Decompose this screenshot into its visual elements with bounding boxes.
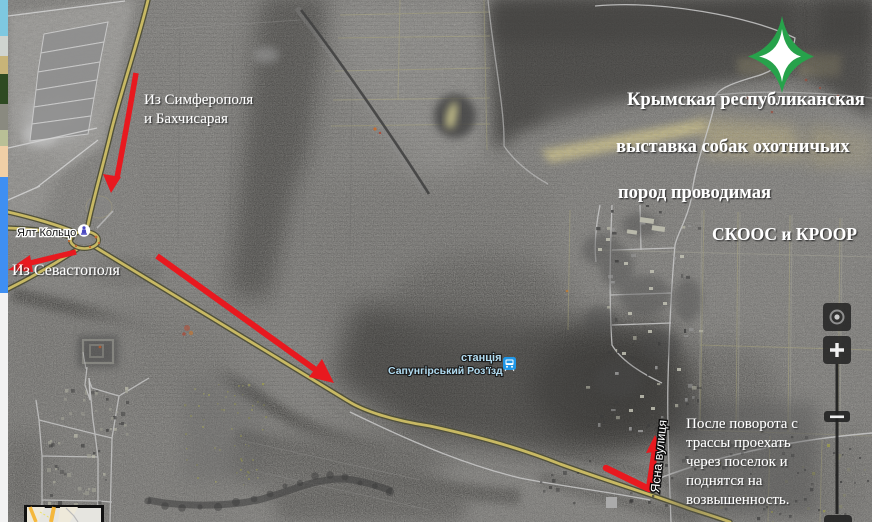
svg-text:поднятся на: поднятся на [686, 473, 763, 489]
svg-text:пород проводимая: пород проводимая [618, 183, 771, 203]
svg-text:и Бахчисарая: и Бахчисарая [144, 111, 228, 127]
svg-text:станція: станція [461, 352, 502, 364]
svg-text:возвышенность.: возвышенность. [686, 492, 790, 508]
svg-text:через поселок и: через поселок и [686, 454, 788, 470]
svg-text:СКООС и КРООР: СКООС и КРООР [712, 224, 857, 244]
svg-text:Сапунгірський Роз'їзд: Сапунгірський Роз'їзд [388, 365, 503, 377]
svg-text:После поворота с: После поворота с [686, 416, 798, 432]
svg-text:выставка собак охотничьих: выставка собак охотничьих [616, 137, 850, 157]
svg-text:Из Симферополя: Из Симферополя [144, 92, 253, 108]
svg-text:трассы проехать: трассы проехать [686, 435, 791, 451]
svg-text:Ялт Кольцо: Ялт Кольцо [17, 227, 76, 239]
svg-text:Крымская республиканская: Крымская республиканская [627, 90, 865, 110]
svg-text:Из Севастополя: Из Севастополя [12, 262, 121, 279]
